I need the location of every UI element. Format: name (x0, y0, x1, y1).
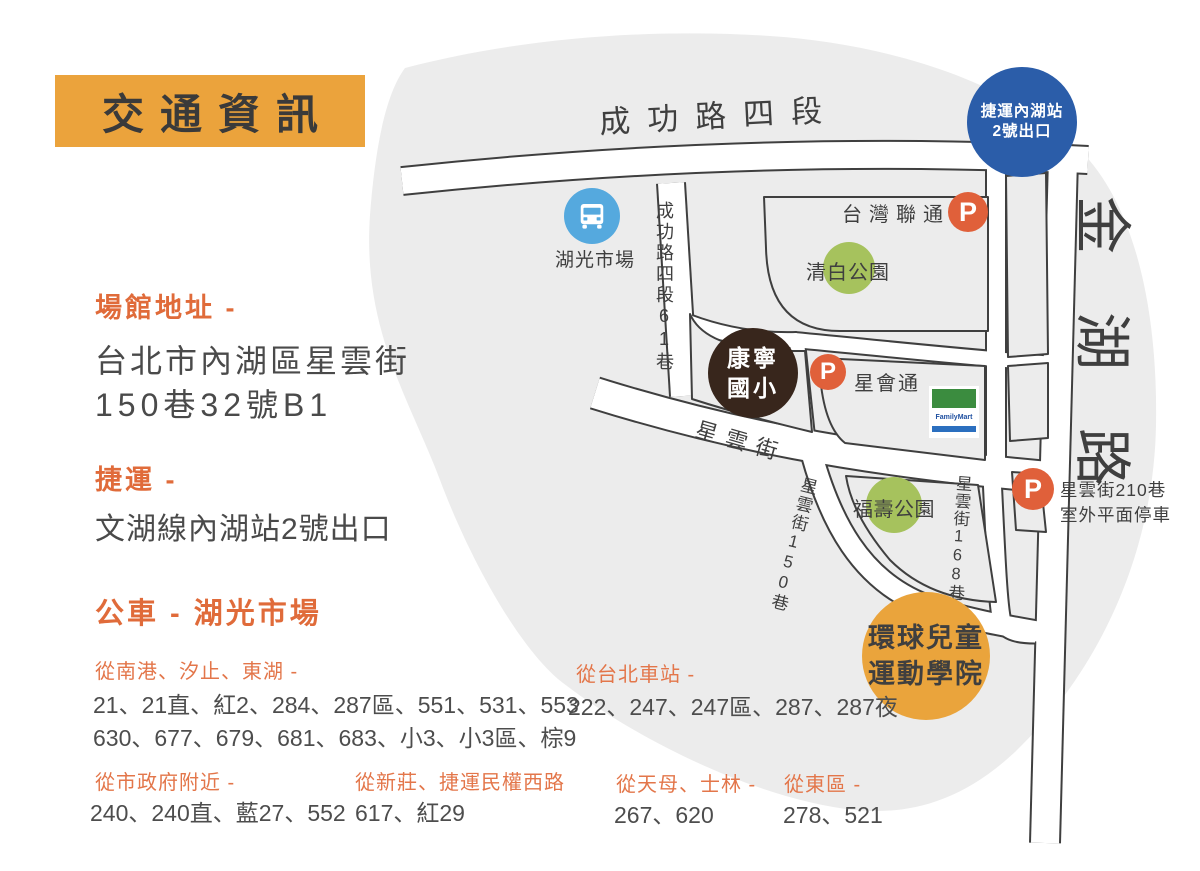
title-banner: 交通資訊 (55, 75, 365, 147)
bus-group-tianmu-from: 從天母、士林 - (616, 768, 756, 797)
bus-group-xinzhuang-routes: 617、紅29 (355, 794, 465, 828)
parking-210-label-line1: 星雲街210巷 (1060, 477, 1166, 502)
familymart-wordmark: FamilyMart (929, 408, 979, 426)
bus-group-east-district-from: 從東區 - (784, 768, 861, 797)
bus-stop-icon (564, 188, 620, 244)
kangning-line1: 康寧 (727, 343, 779, 373)
academy-line1: 環球兒童 (868, 620, 984, 656)
bus-group-xinzhuang-from: 從新莊、捷運民權西路 (355, 766, 565, 795)
mrt-heading: 捷運 - (95, 458, 178, 497)
parking-210-label-line2: 室外平面停車 (1060, 502, 1171, 527)
bus-group-taipei-station-from: 從台北車站 - (576, 658, 695, 687)
familymart-logo: FamilyMart (929, 386, 979, 438)
address-heading: 場館地址 - (95, 286, 238, 325)
road-label-chenggong-61: 成功路四段61巷 (651, 201, 677, 416)
bus-group-taipei-station-routes: 222、247、247區、287、287夜 (568, 688, 898, 722)
jinhu-char-2: 湖 (1065, 312, 1149, 370)
address-line1: 台北市內湖區星雲街 (95, 336, 410, 382)
bus-group-city-hall-routes: 240、240直、藍27、552 (90, 794, 346, 828)
road-label-jinhu: 金 湖 路 (1078, 183, 1136, 499)
mrt-exit-line2: 2號出口 (992, 122, 1051, 142)
fushou-park-label: 福壽公園 (853, 493, 935, 522)
academy-line2: 運動學院 (868, 656, 984, 692)
mrt-exit-line1: 捷運內湖站 (981, 102, 1064, 122)
block-strip-upper (1006, 173, 1048, 357)
kangning-line2: 國小 (727, 373, 779, 403)
block-strip-lower (1008, 363, 1048, 441)
bus-stop-label: 湖光市場 (540, 245, 650, 272)
mrt-exit-badge: 捷運內湖站 2號出口 (967, 67, 1077, 177)
mrt-detail: 文湖線內湖站2號出口 (95, 504, 392, 548)
bus-group-nangang-from: 從南港、汐止、東湖 - (95, 655, 298, 684)
kangning-school-badge: 康寧 國小 (708, 328, 798, 418)
qingbai-park-label: 清白公園 (806, 256, 890, 285)
parking-icon-xinghuitong: P (810, 354, 846, 390)
taiwan-liantong-label: 台灣聯通 (842, 198, 950, 227)
bus-group-east-district-routes: 278、521 (783, 796, 883, 830)
bus-group-nangang-routes: 21、21直、紅2、284、287區、551、531、553 (93, 686, 579, 720)
page-title: 交通資訊 (102, 81, 334, 142)
address-line2: 150巷32號B1 (95, 380, 332, 426)
bus-group-nangang-routes2: 630、677、679、681、683、小3、小3區、棕9 (93, 719, 576, 753)
bus-group-tianmu-routes: 267、620 (614, 796, 714, 830)
bus-group-city-hall-from: 從市政府附近 - (95, 766, 235, 795)
parking-icon-210: P (1012, 468, 1054, 510)
bus-icon (574, 198, 610, 234)
familymart-green-bar (932, 389, 976, 408)
familymart-blue-bar (932, 426, 976, 432)
parking-icon-taiwan-liantong: P (948, 192, 988, 232)
bus-heading: 公車 - 湖光市場 (95, 590, 322, 632)
jinhu-char-1: 金 (1065, 196, 1149, 254)
xinghuitong-label: 星會通 (854, 367, 920, 396)
